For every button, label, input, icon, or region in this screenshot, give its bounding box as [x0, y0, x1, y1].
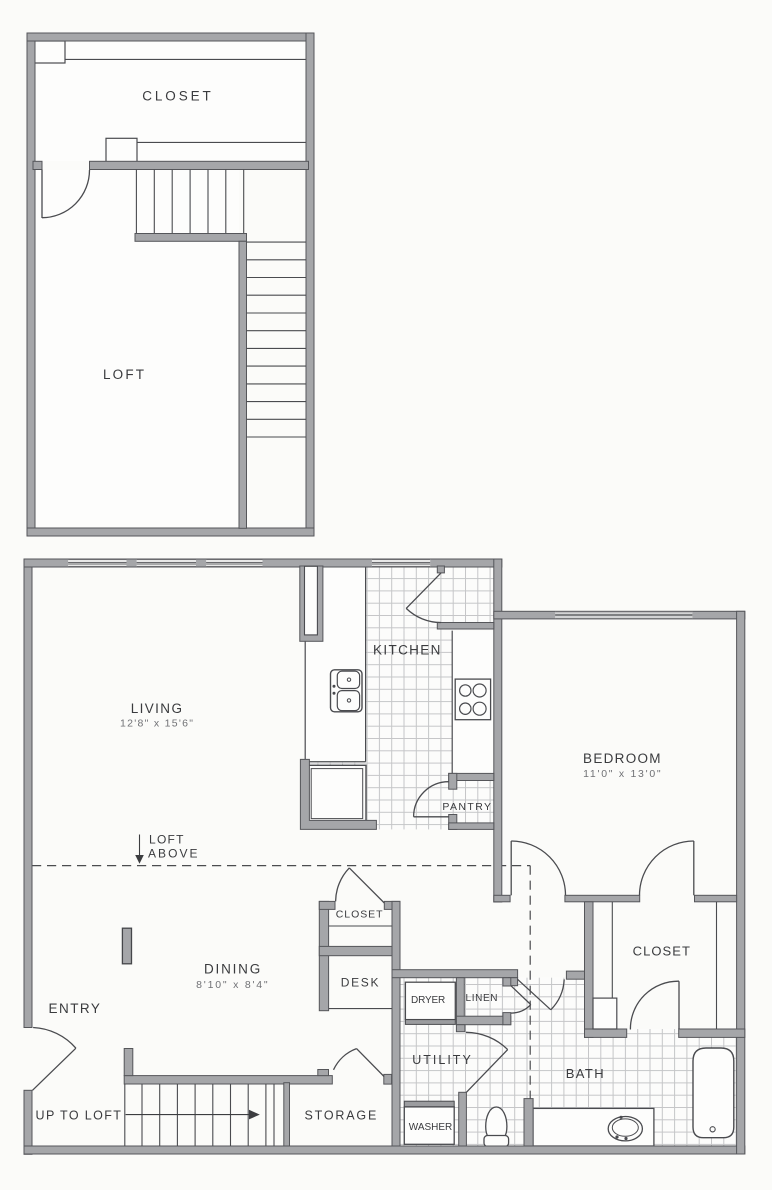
- svg-text:BEDROOM: BEDROOM: [583, 751, 664, 766]
- svg-text:CLOSET: CLOSET: [142, 89, 215, 104]
- svg-text:11'0" x 13'0": 11'0" x 13'0": [583, 768, 662, 780]
- svg-text:UTILITY: UTILITY: [412, 1053, 473, 1067]
- svg-text:PANTRY: PANTRY: [442, 801, 492, 813]
- svg-text:CLOSET: CLOSET: [336, 909, 385, 921]
- svg-text:DESK: DESK: [341, 976, 381, 990]
- svg-text:8'10" x 8'4": 8'10" x 8'4": [196, 979, 269, 991]
- svg-text:STORAGE: STORAGE: [305, 1109, 379, 1123]
- svg-text:LINEN: LINEN: [466, 993, 499, 1004]
- svg-text:LOFT: LOFT: [149, 833, 185, 847]
- svg-text:BATH: BATH: [566, 1066, 607, 1081]
- svg-text:12'8" x 15'6": 12'8" x 15'6": [120, 718, 194, 730]
- svg-text:KITCHEN: KITCHEN: [373, 643, 443, 658]
- svg-text:LIVING: LIVING: [131, 701, 186, 716]
- svg-text:UP TO LOFT: UP TO LOFT: [36, 1109, 123, 1123]
- svg-text:LOFT: LOFT: [103, 367, 148, 382]
- svg-text:ENTRY: ENTRY: [48, 1001, 103, 1016]
- svg-text:CLOSET: CLOSET: [633, 944, 693, 959]
- svg-text:DINING: DINING: [204, 962, 264, 977]
- svg-text:ABOVE: ABOVE: [148, 847, 199, 861]
- svg-text:WASHER: WASHER: [409, 1122, 453, 1133]
- svg-text:DRYER: DRYER: [411, 995, 446, 1006]
